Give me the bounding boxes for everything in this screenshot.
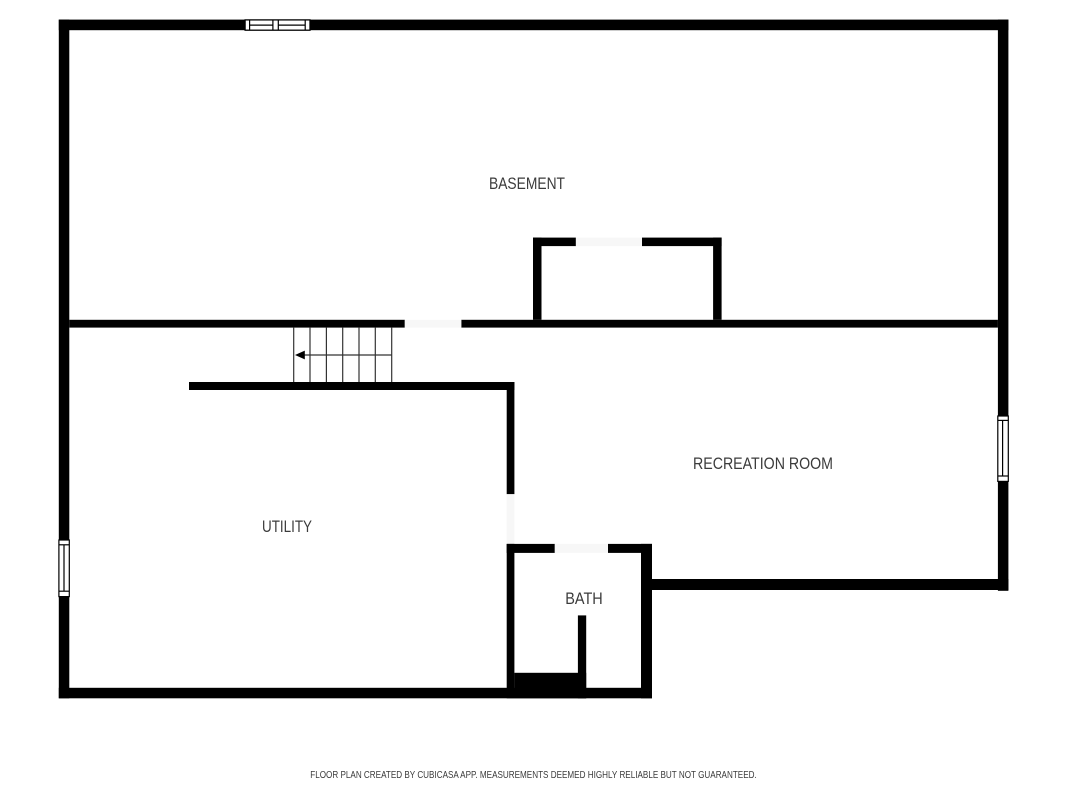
svg-text:BATH: BATH [565,589,603,608]
svg-text:FLOOR PLAN CREATED BY CUBICASA: FLOOR PLAN CREATED BY CUBICASA APP. MEAS… [310,770,757,781]
svg-text:UTILITY: UTILITY [262,517,312,536]
svg-text:BASEMENT: BASEMENT [489,174,565,193]
svg-text:RECREATION ROOM: RECREATION ROOM [693,454,833,473]
